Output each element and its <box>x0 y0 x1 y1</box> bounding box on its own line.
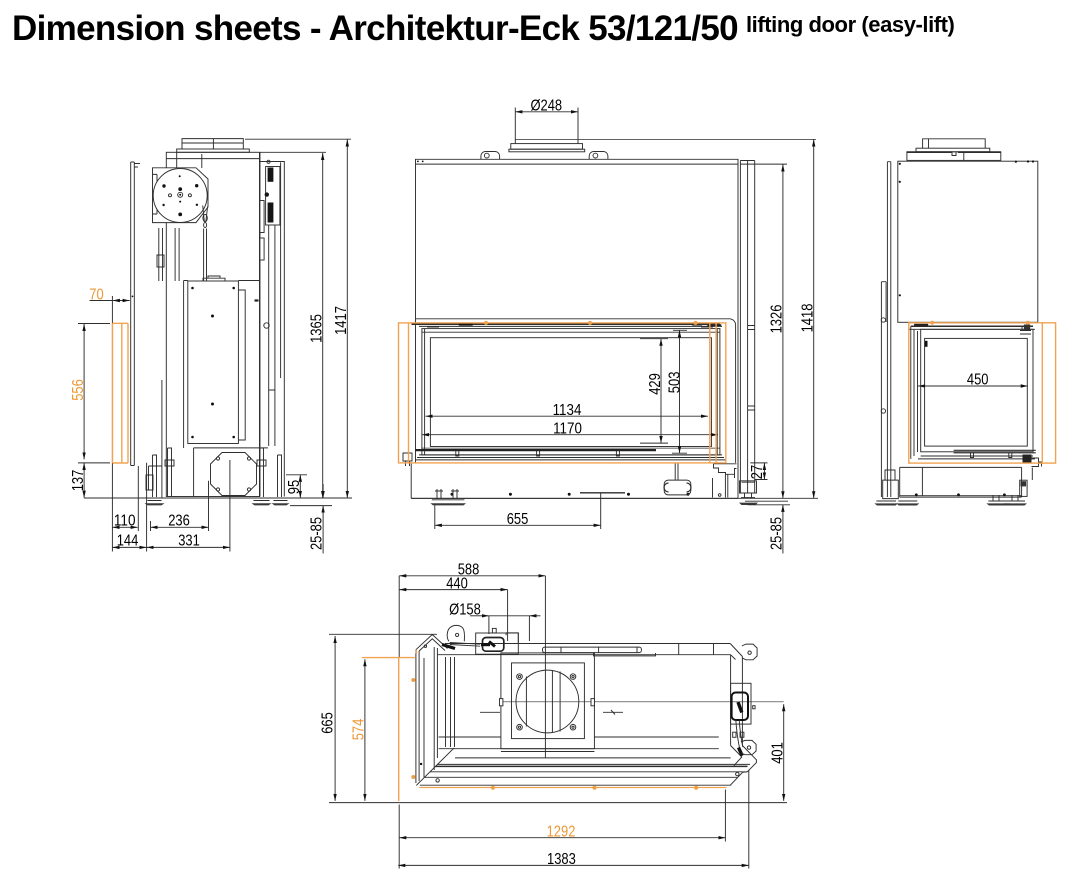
svg-text:110: 110 <box>114 512 136 529</box>
svg-text:25-85: 25-85 <box>309 517 326 550</box>
svg-text:1383: 1383 <box>547 851 576 868</box>
svg-text:1292: 1292 <box>547 823 576 840</box>
svg-text:1365: 1365 <box>309 314 326 343</box>
svg-text:137: 137 <box>70 470 87 492</box>
svg-text:503: 503 <box>666 372 683 394</box>
svg-text:Ø248: Ø248 <box>530 98 562 115</box>
svg-text:95: 95 <box>286 480 303 494</box>
svg-text:144: 144 <box>117 533 139 550</box>
svg-text:1418: 1418 <box>799 304 816 333</box>
svg-text:27: 27 <box>749 465 766 479</box>
svg-text:331: 331 <box>178 533 200 550</box>
svg-text:Ø158: Ø158 <box>449 602 481 619</box>
svg-text:1134: 1134 <box>553 402 582 419</box>
svg-text:70: 70 <box>89 287 104 304</box>
svg-text:556: 556 <box>70 379 87 401</box>
svg-text:655: 655 <box>507 511 529 528</box>
svg-text:1170: 1170 <box>553 420 582 437</box>
svg-text:25-85: 25-85 <box>769 517 786 550</box>
svg-text:450: 450 <box>967 372 989 389</box>
svg-text:574: 574 <box>351 718 368 740</box>
svg-text:1417: 1417 <box>333 306 350 335</box>
svg-text:440: 440 <box>446 575 468 592</box>
svg-text:1326: 1326 <box>769 305 786 334</box>
svg-text:401: 401 <box>770 742 787 764</box>
svg-text:236: 236 <box>168 512 190 529</box>
svg-text:665: 665 <box>320 712 337 734</box>
svg-text:429: 429 <box>647 373 664 395</box>
